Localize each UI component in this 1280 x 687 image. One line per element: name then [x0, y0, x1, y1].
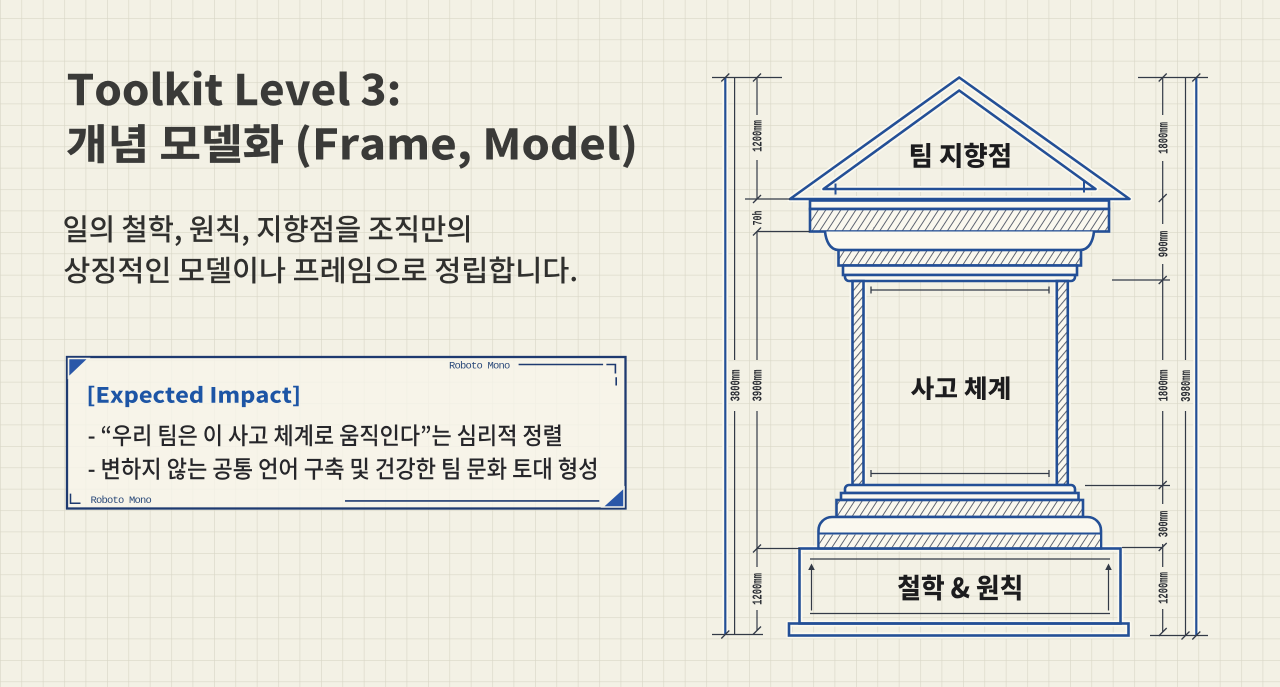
svg-text:1200mm: 1200mm: [750, 120, 767, 152]
svg-text:Roboto Mono: Roboto Mono: [91, 495, 152, 507]
svg-text:3800mm: 3800mm: [727, 370, 744, 402]
svg-text:900mm: 900mm: [1155, 231, 1172, 257]
svg-text:1200mm: 1200mm: [750, 573, 767, 605]
svg-text:300mm: 300mm: [1155, 511, 1172, 537]
svg-text:1800mm: 1800mm: [1155, 122, 1172, 154]
svg-text:1200mm: 1200mm: [1155, 572, 1172, 604]
svg-text:1800mm: 1800mm: [1155, 370, 1172, 402]
svg-text:3980mm: 3980mm: [1178, 370, 1195, 402]
svg-text:70h: 70h: [752, 211, 766, 226]
svg-text:3900mm: 3900mm: [750, 370, 767, 402]
svg-text:Roboto Mono: Roboto Mono: [449, 361, 510, 373]
